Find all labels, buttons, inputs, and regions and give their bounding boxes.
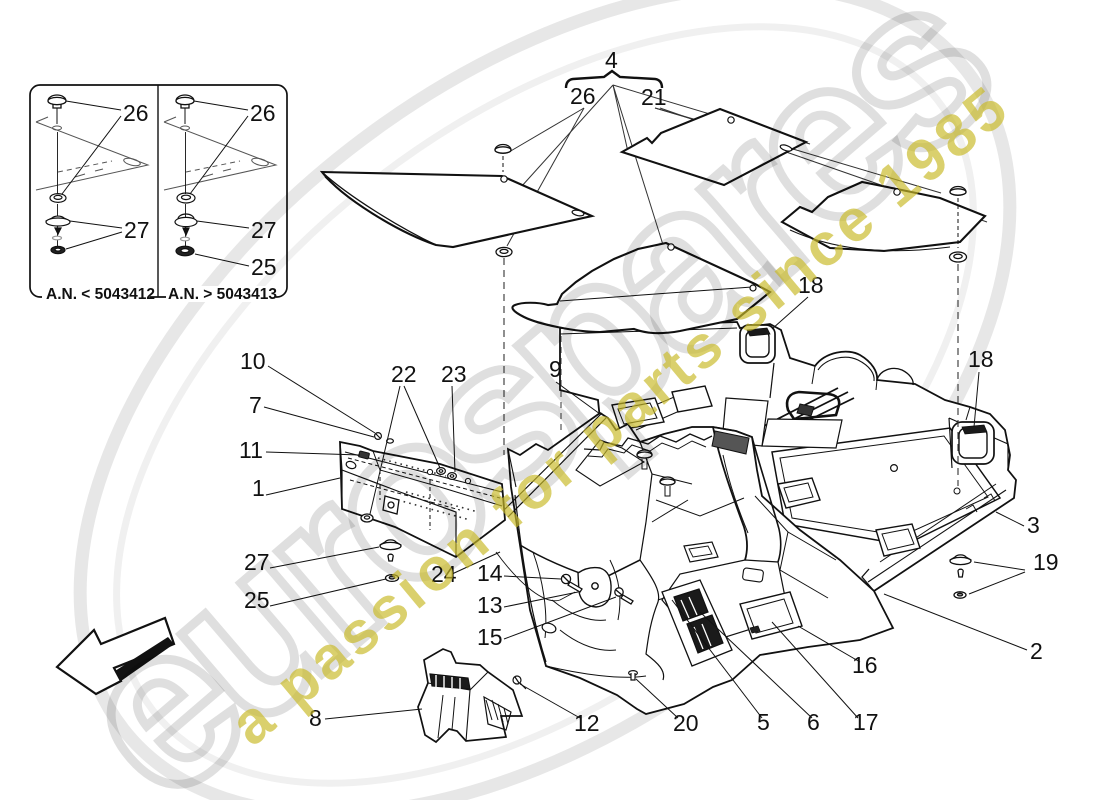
svg-text:26: 26: [250, 100, 276, 126]
svg-text:A.N. < 5043412: A.N. < 5043412: [46, 286, 155, 303]
svg-text:10: 10: [240, 348, 266, 374]
svg-text:12: 12: [574, 710, 600, 736]
svg-text:21: 21: [641, 84, 667, 110]
svg-text:15: 15: [477, 624, 503, 650]
svg-text:5: 5: [757, 709, 770, 735]
svg-text:A.N. > 5043413: A.N. > 5043413: [168, 286, 277, 303]
svg-text:17: 17: [853, 709, 879, 735]
svg-text:18: 18: [968, 346, 994, 372]
svg-text:27: 27: [251, 217, 277, 243]
svg-text:6: 6: [807, 709, 820, 735]
svg-text:25: 25: [251, 254, 277, 280]
svg-text:16: 16: [852, 652, 878, 678]
svg-text:26: 26: [570, 83, 596, 109]
svg-text:20: 20: [673, 710, 699, 736]
svg-text:2: 2: [1030, 638, 1043, 664]
svg-text:27: 27: [124, 217, 150, 243]
svg-text:19: 19: [1033, 549, 1059, 575]
svg-text:3: 3: [1027, 512, 1040, 538]
svg-text:26: 26: [123, 100, 149, 126]
svg-text:4: 4: [605, 47, 618, 73]
svg-text:7: 7: [249, 392, 262, 418]
